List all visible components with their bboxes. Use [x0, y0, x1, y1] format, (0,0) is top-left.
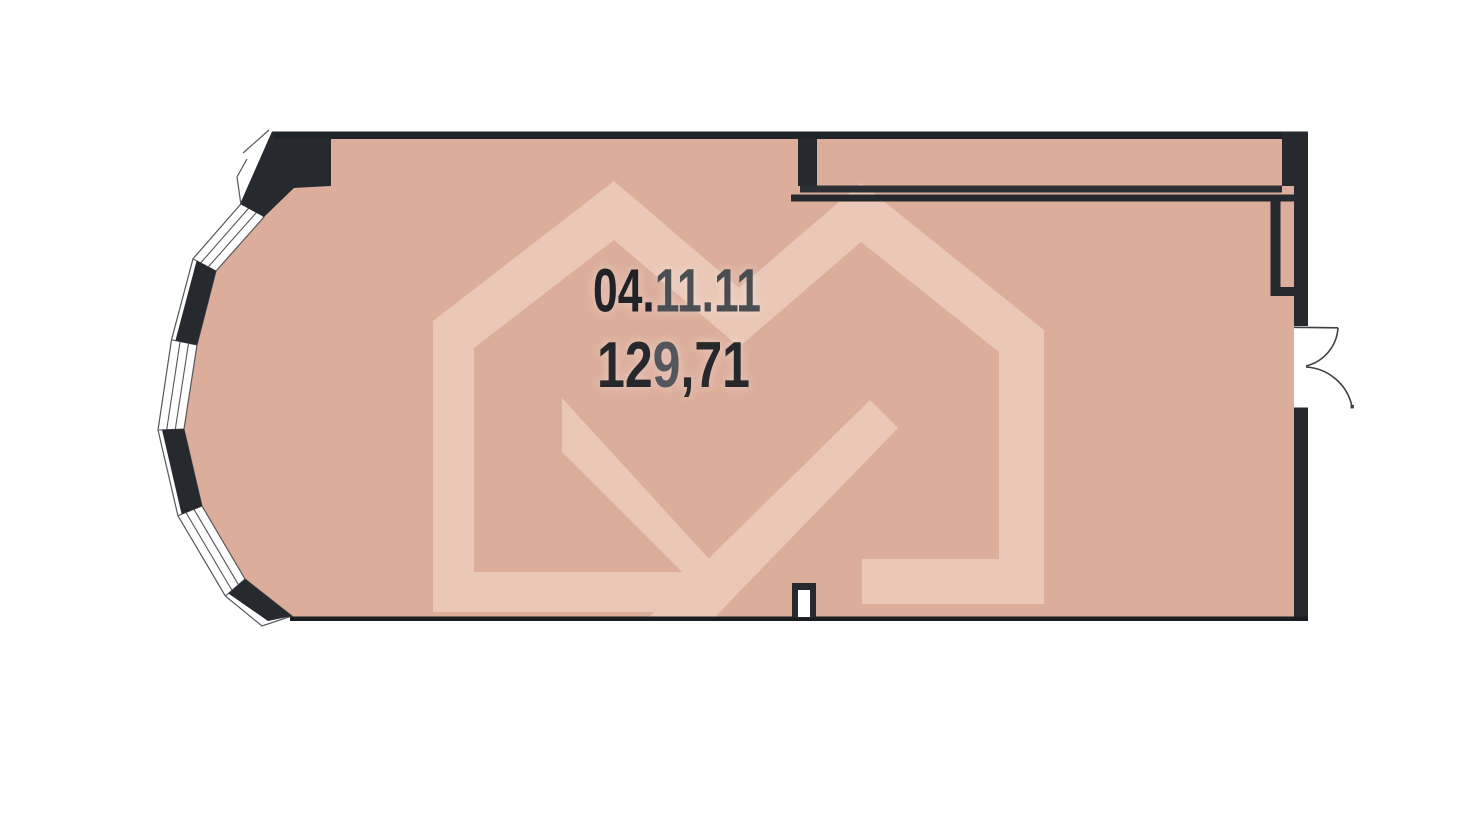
svg-text:04.11.11: 04.11.11 [593, 257, 761, 325]
svg-text:129,71: 129,71 [597, 328, 750, 401]
